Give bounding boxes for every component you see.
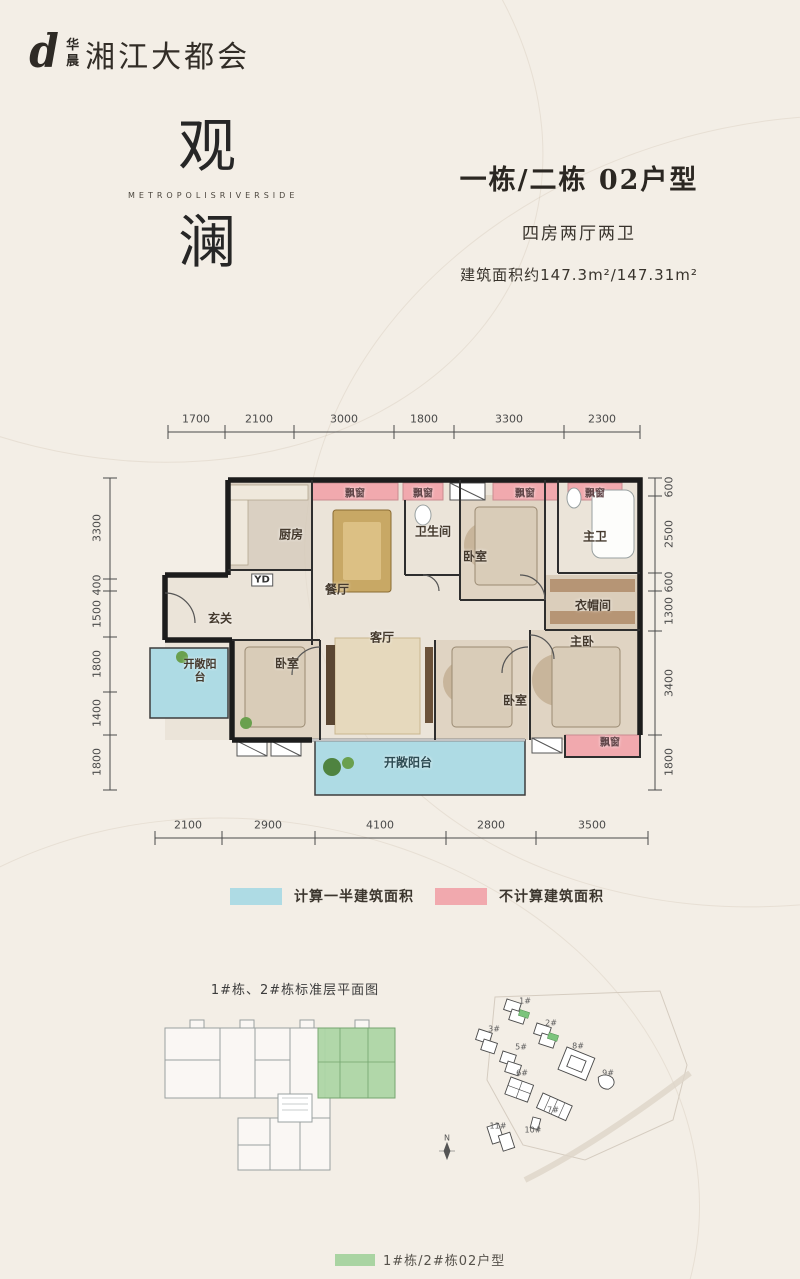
room-label-bay-window: 飘窗 (515, 485, 535, 500)
room-label-bedroom-left: 卧室 (275, 655, 299, 672)
dim-label: 2900 (254, 819, 282, 832)
site-label-7: 7# (547, 1106, 559, 1115)
floor-plan-drawing (80, 395, 725, 875)
room-label-bay-window: 飘窗 (345, 485, 365, 500)
brand-logo-icon: d (29, 28, 59, 74)
site-label-3: 3# (488, 1025, 500, 1034)
dim-label: 2100 (245, 413, 273, 426)
unit-layout: 四房两厅两卫 (446, 219, 712, 244)
hero-title-char-2: 澜 (128, 212, 286, 273)
room-label-foyer: 玄关 (208, 610, 232, 627)
dim-label: 2800 (477, 819, 505, 832)
dim-label: 3500 (578, 819, 606, 832)
room-label-bathroom: 卫生间 (415, 523, 451, 540)
room-label-balcony-left: 开敞阳台 (182, 658, 218, 683)
dim-label: 1400 (91, 699, 104, 727)
dim-label: 3000 (330, 413, 358, 426)
room-label-master-bath: 主卫 (583, 528, 607, 545)
dim-label: 2100 (174, 819, 202, 832)
hero-title-block: 观 METROPOLISRIVERSIDE 澜 (128, 116, 286, 273)
dim-label: 1800 (91, 748, 104, 776)
hero-title-char-1: 观 (128, 116, 286, 177)
site-label-9: 9# (602, 1069, 614, 1078)
site-plan-diagram (435, 985, 700, 1185)
brand-logo: d 华晨 湘江大都会 (28, 26, 250, 76)
floorplate-caption: 1#栋、2#栋标准层平面图 (145, 979, 445, 998)
floor-plan (80, 395, 725, 875)
compass-n-label: N (444, 1134, 450, 1143)
dim-label: 2300 (588, 413, 616, 426)
site-label-11: 11# (490, 1122, 507, 1131)
hero-subtitle-en: METROPOLISRIVERSIDE (128, 191, 286, 200)
dim-label: 1500 (91, 600, 104, 628)
room-label-cloakroom: 衣帽间 (575, 597, 611, 614)
dim-label: 2500 (663, 520, 676, 548)
floorplate-highlight-unit (318, 1028, 395, 1098)
dim-label: 4100 (366, 819, 394, 832)
room-label-bay-window: 飘窗 (413, 485, 433, 500)
brand-logo-name: 湘江大都会 (85, 32, 250, 76)
unit-area: 建筑面积约147.3m²/147.31m² (446, 264, 712, 285)
site-label-5: 5# (515, 1043, 527, 1052)
footer-legend-label: 1#栋/2#栋02户型 (383, 1250, 505, 1269)
dim-label: 1300 (663, 597, 676, 625)
room-label-living: 客厅 (370, 629, 394, 646)
dim-label: 400 (91, 575, 104, 596)
footer-legend: 1#栋/2#栋02户型 (335, 1250, 505, 1269)
compass-icon (439, 1143, 455, 1159)
room-label-utility: YD (251, 574, 273, 587)
unit-info-block: 一栋/二栋 02户型 四房两厅两卫 建筑面积约147.3m²/147.31m² (446, 158, 712, 285)
room-label-balcony-bottom: 开敞阳台 (384, 754, 432, 771)
site-label-10: 10# (525, 1126, 542, 1135)
legend-label: 不计算建筑面积 (499, 886, 604, 906)
poster: d 华晨 湘江大都会 观 METROPOLISRIVERSIDE 澜 一栋/二栋… (0, 0, 800, 1279)
dim-label: 1800 (410, 413, 438, 426)
dim-label: 1700 (182, 413, 210, 426)
site-label-8: 8# (572, 1042, 584, 1051)
dim-label: 3300 (91, 514, 104, 542)
legend-no-area: 不计算建筑面积 (435, 886, 604, 906)
site-label-6: 6# (516, 1069, 528, 1078)
legend-swatch-pink (435, 888, 487, 905)
footer-swatch-green (335, 1254, 375, 1266)
room-label-bedroom-mid: 卧室 (503, 692, 527, 709)
dim-label: 600 (663, 572, 676, 593)
legend-label: 计算一半建筑面积 (294, 886, 414, 906)
dim-label: 600 (663, 477, 676, 498)
unit-name: 一栋/二栋 02户型 (446, 158, 712, 197)
room-label-dining: 餐厅 (325, 581, 349, 598)
dim-label: 1800 (663, 748, 676, 776)
room-label-kitchen: 厨房 (279, 526, 303, 543)
legend-half-area: 计算一半建筑面积 (230, 886, 414, 906)
brand-logo-sub: 华晨 (66, 38, 81, 69)
room-label-bay-window: 飘窗 (585, 485, 605, 500)
dim-label: 3400 (663, 669, 676, 697)
dim-label: 3300 (495, 413, 523, 426)
legend-swatch-blue (230, 888, 282, 905)
room-label-bedroom-top: 卧室 (463, 548, 487, 565)
site-label-1: 1# (519, 997, 531, 1006)
dim-label: 1800 (91, 650, 104, 678)
room-label-master-bedroom: 主卧 (570, 633, 594, 650)
site-label-2: 2# (545, 1019, 557, 1028)
floorplate-diagram (150, 1000, 430, 1185)
room-label-bay-window: 飘窗 (600, 734, 620, 749)
